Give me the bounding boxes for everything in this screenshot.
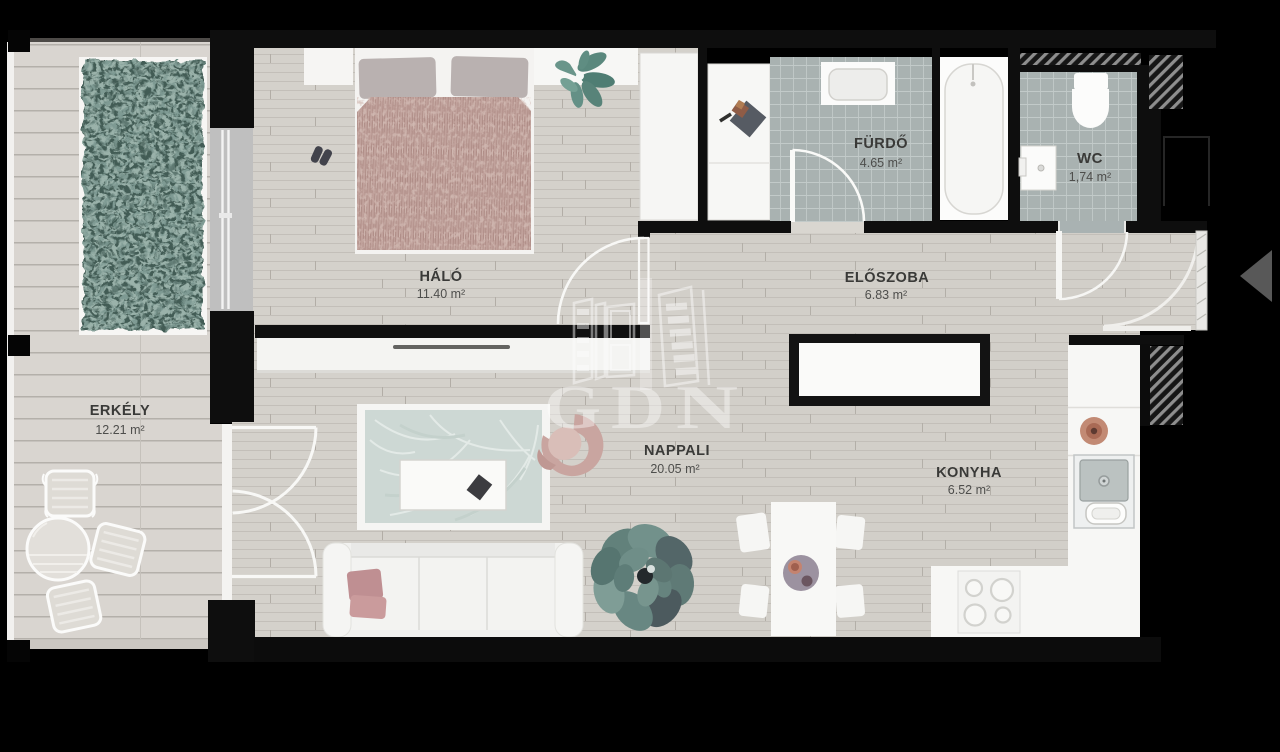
svg-text:HÁLÓ: HÁLÓ (419, 267, 462, 285)
svg-text:4.65 m²: 4.65 m² (860, 156, 902, 170)
svg-text:6.83 m²: 6.83 m² (865, 288, 907, 302)
svg-text:KONYHA: KONYHA (936, 465, 1002, 481)
svg-text:6.52 m²: 6.52 m² (948, 483, 990, 497)
svg-text:11.40 m²: 11.40 m² (417, 287, 465, 301)
svg-text:ERKÉLY: ERKÉLY (90, 402, 150, 419)
svg-text:G: G (544, 374, 601, 442)
svg-text:FÜRDŐ: FÜRDŐ (854, 134, 908, 152)
svg-text:20.05 m²: 20.05 m² (650, 462, 699, 476)
svg-text:D: D (611, 374, 665, 442)
svg-text:1,74 m²: 1,74 m² (1069, 170, 1111, 184)
svg-text:NAPPALI: NAPPALI (644, 443, 710, 459)
svg-text:WC: WC (1077, 150, 1103, 167)
svg-text:N: N (676, 374, 738, 442)
svg-text:ELŐSZOBA: ELŐSZOBA (845, 268, 930, 286)
svg-text:12.21 m²: 12.21 m² (95, 423, 144, 437)
